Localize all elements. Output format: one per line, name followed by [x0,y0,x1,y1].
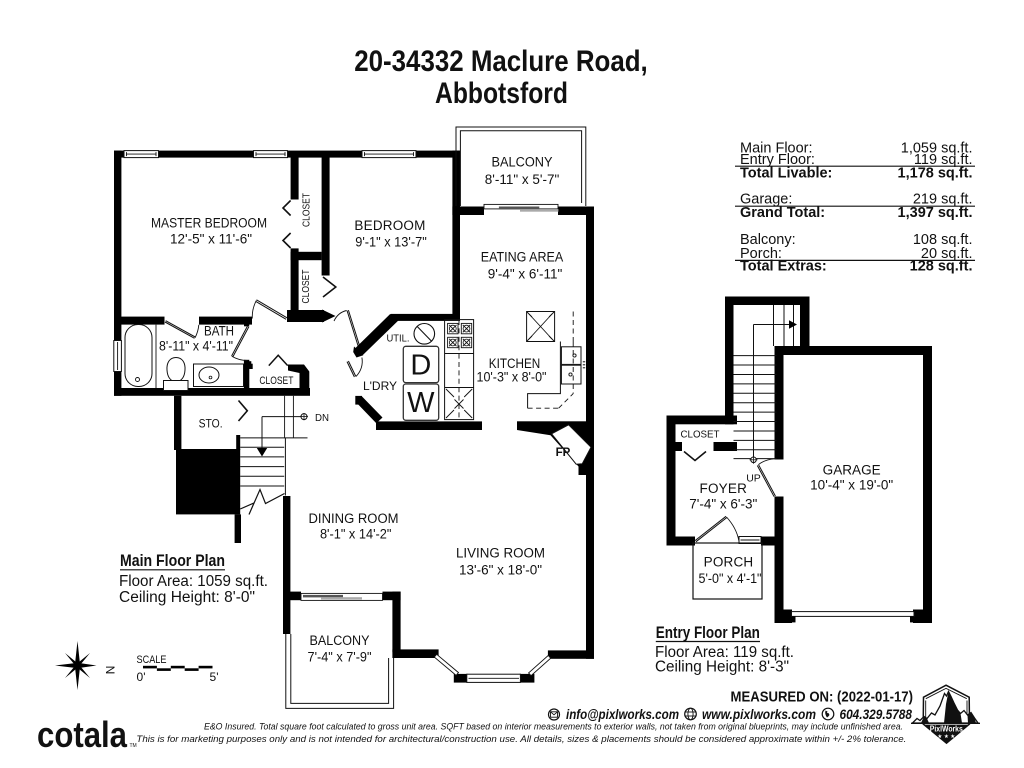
svg-text:★ ★ ★: ★ ★ ★ [937,733,955,740]
svg-text:BALCONY: BALCONY [492,155,553,170]
svg-text:Total Extras:: Total Extras: [740,259,827,275]
svg-text:9'-4" x 6'-11": 9'-4" x 6'-11" [488,267,563,282]
svg-text:20-34332 Maclure Road,: 20-34332 Maclure Road, [354,45,648,78]
svg-text:Floor Area: 1059 sq.ft.: Floor Area: 1059 sq.ft. [119,573,268,590]
svg-text:PixlWorks: PixlWorks [930,725,963,734]
svg-text:10'-4" x 19'-0": 10'-4" x 19'-0" [810,478,893,493]
svg-text:EATING AREA: EATING AREA [481,250,564,265]
svg-text:E&O Insured. Total square foo: E&O Insured. Total square foot calculate… [204,721,903,731]
svg-text:BATH: BATH [204,324,234,339]
svg-text:1,397 sq.ft.: 1,397 sq.ft. [898,205,973,221]
svg-text:Entry Floor Plan: Entry Floor Plan [656,623,760,642]
svg-text:CLOSET: CLOSET [301,270,312,304]
svg-text:info@pixlworks.com: info@pixlworks.com [566,707,679,722]
svg-text:CLOSET: CLOSET [301,193,312,227]
svg-text:CLOSET: CLOSET [259,375,293,387]
svg-text:7'-4" x 6'-3": 7'-4" x 6'-3" [689,497,757,512]
svg-text:8'-1" x 14'-2": 8'-1" x 14'-2" [320,527,392,542]
svg-text:cotala: cotala [37,714,128,755]
svg-text:128 sq.ft.: 128 sq.ft. [910,259,973,275]
svg-text:Ceiling Height: 8'-0": Ceiling Height: 8'-0" [119,589,255,606]
svg-text:MEASURED ON: (2022-01-17): MEASURED ON: (2022-01-17) [731,690,914,706]
svg-text:Total Livable:: Total Livable: [740,166,832,182]
svg-text:D: D [410,349,431,381]
svg-text:9'-1" x 13'-7": 9'-1" x 13'-7" [355,235,427,250]
svg-text:BEDROOM: BEDROOM [354,218,425,233]
svg-text:This is for marketing purposes: This is for marketing purposes only and … [136,734,906,744]
svg-text:DINING ROOM: DINING ROOM [309,511,399,526]
svg-text:UTIL.: UTIL. [387,333,410,345]
svg-text:13'-6" x 18'-0": 13'-6" x 18'-0" [459,563,542,578]
svg-text:BALCONY: BALCONY [310,633,370,648]
svg-text:1,178 sq.ft.: 1,178 sq.ft. [898,166,973,182]
svg-text:Ceiling Height: 8'-3": Ceiling Height: 8'-3" [655,659,789,676]
svg-text:12'-5" x 11'-6": 12'-5" x 11'-6" [170,232,252,247]
svg-text:L'DRY: L'DRY [363,379,397,393]
svg-text:FOYER: FOYER [700,481,748,496]
svg-text:0': 0' [137,670,146,684]
svg-text:Abbotsford: Abbotsford [435,77,568,110]
svg-text:5': 5' [210,670,219,684]
svg-text:N: N [103,666,117,675]
svg-text:10'-3" x 8'-0": 10'-3" x 8'-0" [477,370,547,385]
svg-text:www.pixlworks.com: www.pixlworks.com [702,707,816,722]
svg-text:CLOSET: CLOSET [681,429,721,441]
svg-text:8'-11" x 5'-7": 8'-11" x 5'-7" [485,172,560,187]
svg-text:PORCH: PORCH [704,555,754,570]
svg-text:W: W [407,387,435,419]
svg-text:LIVING ROOM: LIVING ROOM [456,546,545,561]
svg-text:FP: FP [556,447,571,459]
svg-text:Grand Total:: Grand Total: [740,205,825,221]
svg-text:MASTER BEDROOM: MASTER BEDROOM [151,216,267,231]
svg-text:604.329.5788: 604.329.5788 [840,707,913,722]
svg-text:DN: DN [315,412,329,424]
svg-text:STO.: STO. [199,417,223,431]
svg-text:8'-11" x 4'-11": 8'-11" x 4'-11" [159,339,233,354]
svg-text:5'-0" x 4'-1": 5'-0" x 4'-1" [699,571,762,586]
svg-text:SCALE: SCALE [137,654,167,666]
svg-text:Main Floor Plan: Main Floor Plan [120,551,225,570]
svg-text:UP: UP [746,473,761,485]
svg-text:GARAGE: GARAGE [823,463,881,478]
svg-text:7'-4" x 7'-9": 7'-4" x 7'-9" [308,650,372,665]
